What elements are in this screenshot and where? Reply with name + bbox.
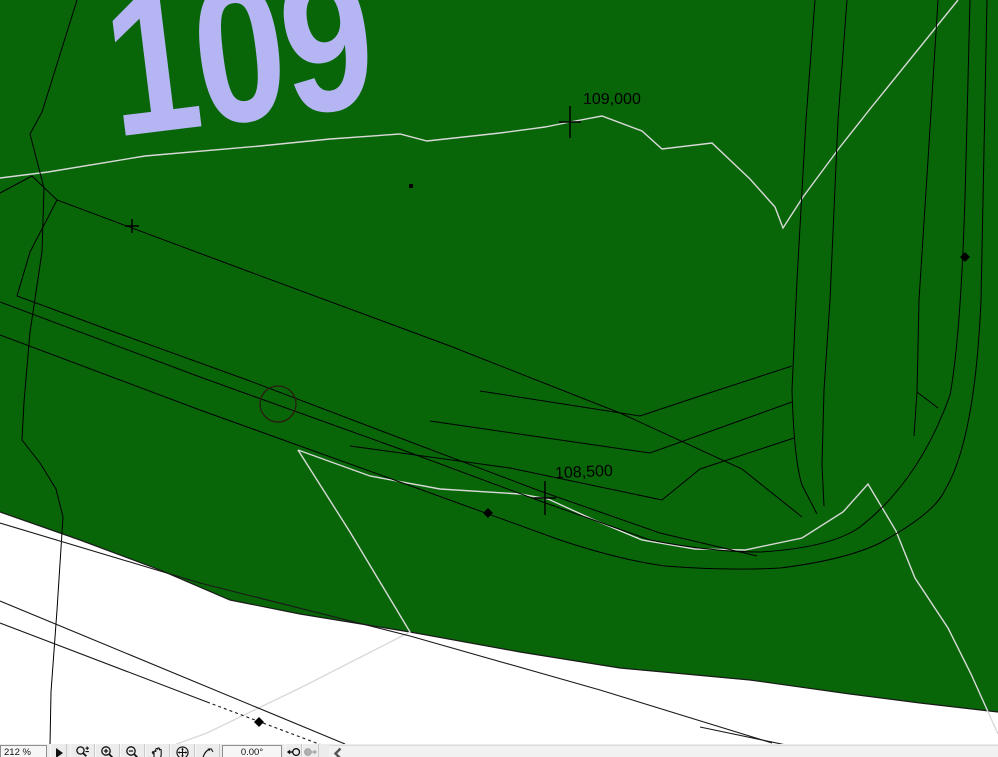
- rotate-view-button[interactable]: [195, 744, 220, 757]
- rotation-angle-field[interactable]: 0.00°: [222, 745, 282, 757]
- node-diamond: [254, 717, 264, 727]
- rotation-angle-value: 0.00°: [241, 747, 263, 757]
- lower-line-b-dashed: [207, 702, 335, 750]
- point-dot: [409, 184, 413, 188]
- zoom-in-icon: [100, 745, 115, 757]
- scrollbar-left-arrow[interactable]: [329, 746, 346, 757]
- zoom-options-button[interactable]: [70, 744, 95, 757]
- zoom-percent-value: 212 %: [4, 747, 31, 757]
- horizontal-scrollbar[interactable]: [329, 745, 998, 757]
- zoom-out-icon: [125, 745, 140, 757]
- fit-in-window-icon: [175, 745, 190, 757]
- zone-number-label: 109: [95, 0, 381, 169]
- zoom-in-button[interactable]: [95, 744, 120, 757]
- next-zoom-button[interactable]: [302, 744, 319, 757]
- scroll-left-icon: [332, 747, 344, 757]
- next-zoom-icon: [303, 745, 318, 757]
- elevation-label-108500: 108,500: [555, 463, 614, 484]
- fit-in-window-button[interactable]: [170, 744, 195, 757]
- zoom-options-icon: [75, 745, 90, 757]
- zoom-percent-field[interactable]: 212 %: [0, 745, 47, 757]
- drawing-area[interactable]: 109 109,000 108,500: [0, 0, 998, 744]
- pan-button[interactable]: [145, 744, 170, 757]
- previous-zoom-icon: [286, 745, 301, 757]
- zoom-flyout-button[interactable]: [50, 744, 67, 757]
- elevation-label-109000: 109,000: [583, 91, 641, 109]
- lower-line-a: [0, 601, 345, 744]
- rotate-view-icon: [200, 745, 215, 757]
- flyout-arrow-icon: [52, 745, 66, 757]
- pan-icon: [150, 745, 165, 757]
- lower-line-b: [0, 623, 207, 702]
- zoom-out-button[interactable]: [120, 744, 145, 757]
- application-window: 109 109,000 108,500 212 %: [0, 0, 998, 757]
- previous-zoom-button[interactable]: [285, 744, 302, 757]
